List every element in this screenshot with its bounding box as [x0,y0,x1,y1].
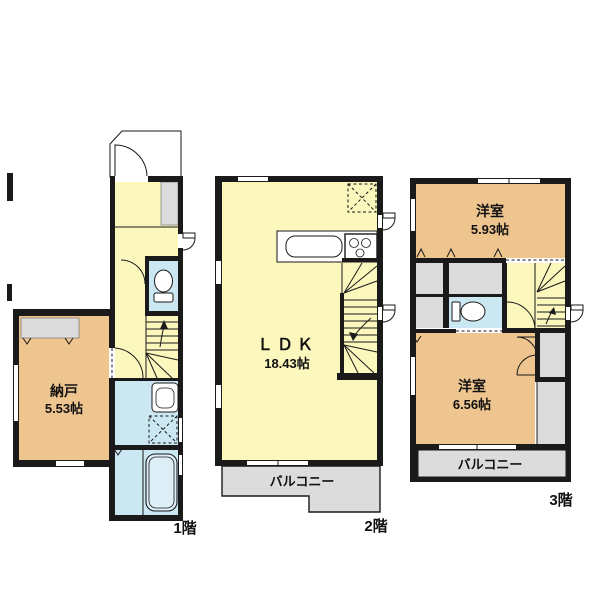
room-label-ldk: ＬＤＫ [257,337,317,354]
room-size-storage: 5.53帖 [45,401,83,416]
stairs-3f-floor [535,263,565,330]
room-label-bedroom2: 洋室 [458,378,486,394]
floor-label-1f: 1階 [173,519,196,537]
toilet-icon [154,270,173,302]
closet-3f-b [449,263,502,295]
storage-closet [21,318,79,338]
floor-plan-drawing: 納戸 5.53帖 1階 [0,0,600,600]
floor-1-plan: 納戸 5.53帖 1階 [7,131,197,537]
closet-3f-a [416,263,443,295]
closet-3f-d [540,333,565,377]
site-wall-ticks [7,173,13,301]
floor-plan-page: 納戸 5.53帖 1階 [0,0,600,600]
balcony-label-2f: バルコニー [270,474,335,489]
closet-3f-e [537,382,565,444]
casement-window-icon-3f [571,305,583,322]
balcony-label-3f: バルコニー [458,457,523,472]
bedroom1-floor [416,184,565,258]
floor-2-plan: バルコニー ＬＤＫ 18.43帖 2階 [215,176,395,535]
floor-3-plan: バルコニー 洋室 5.93帖 洋室 6.56帖 3階 [410,178,583,509]
hall-3f-floor [507,263,535,330]
casement-window-icon-1f [183,233,195,250]
toilet-icon-3f [452,302,485,321]
room-label-storage: 納戸 [50,383,78,399]
room-size-ldk: 18.43帖 [264,356,310,371]
balcony-2f: バルコニー [222,466,380,512]
bathtub-icon [146,454,177,511]
floor-label-3f: 3階 [549,491,572,509]
entrance-porch [110,131,181,177]
kitchen-counter [277,231,377,262]
casement-window-icon-2f-a [383,213,395,230]
room-label-bedroom1: 洋室 [476,203,504,219]
room-size-bedroom2: 6.56帖 [453,397,491,412]
washbasin-icon [152,383,178,412]
casement-window-icon-2f-b [383,305,395,322]
shoe-cabinet [161,182,178,225]
balcony-3f: バルコニー [418,450,566,477]
closet-3f-c [416,297,443,328]
floor-label-2f: 2階 [364,517,387,535]
room-size-bedroom1: 5.93帖 [471,222,509,237]
kitchen-sink-icon [286,236,342,257]
